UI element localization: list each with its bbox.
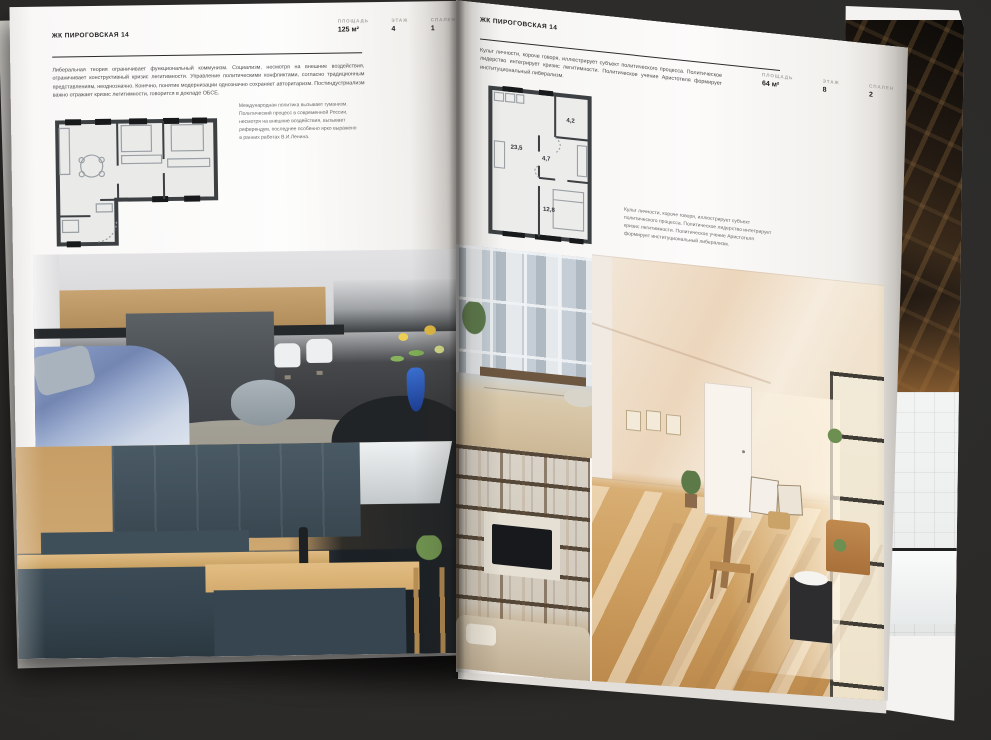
basket-shape (768, 511, 790, 530)
plan-outline (490, 88, 589, 242)
island-front-shape (214, 588, 407, 657)
plan-outline (57, 120, 217, 244)
ceiling-edge-shape (592, 321, 771, 384)
left-header-rule (52, 52, 362, 57)
room-label-bedroom: 12,8 (543, 206, 555, 214)
picture-frame-shape (626, 410, 641, 432)
wood-bench-shape (480, 367, 586, 387)
right-page-title: ЖК ПИРОГОВСКАЯ 14 (480, 17, 557, 32)
stat-bedrooms-label: СПАЛЕН (869, 83, 894, 91)
door-knob-shape (742, 450, 745, 453)
white-chair-shape (274, 343, 300, 367)
picture-frame-shape (646, 410, 661, 432)
tv-screen-shape (492, 524, 552, 570)
room-label-bath: 4,2 (566, 117, 575, 125)
white-chair-shape (306, 339, 332, 363)
leaning-frame-shape (749, 476, 779, 516)
balcony-plant-shape (460, 300, 488, 351)
potted-plant-shape (678, 469, 704, 512)
stat-floor-label: ЭТАЖ (391, 18, 408, 23)
photo-kitchen-teal (16, 441, 471, 659)
stat-bedrooms-value: 1 (431, 25, 456, 32)
stat-floor-value: 4 (391, 26, 408, 33)
room-label-living: 23,5 (511, 144, 523, 152)
left-page-title: ЖК ПИРОГОВСКАЯ 14 (52, 32, 129, 40)
floor-plan-125 (51, 110, 223, 250)
stat-bedrooms-value: 2 (869, 91, 894, 101)
dark-table-shape (331, 395, 468, 447)
photo-attic-room (592, 254, 884, 713)
stat-bedrooms: СПАЛЕН 1 (431, 17, 456, 32)
picture-frame-shape (666, 414, 681, 436)
black-side-table-shape (790, 577, 832, 643)
leaning-frame-shape (777, 485, 803, 516)
stat-area-value: 125 м² (338, 26, 369, 33)
floor-plan-64: 23,5 4,7 4,2 12,8 (482, 79, 600, 251)
bottle-shape (299, 527, 309, 563)
room-label-hall: 4,7 (542, 155, 551, 163)
stat-area: ПЛОЩАДЬ 64 м² (762, 72, 793, 90)
stat-floor-value: 8 (823, 87, 840, 96)
left-stats-row: ПЛОЩАДЬ 125 м² ЭТАЖ 4 СПАЛЕН 1 (338, 17, 456, 34)
stat-floor: ЭТАЖ 8 (823, 79, 840, 96)
left-intro-paragraph: Либеральная теория ограничивает функцион… (52, 62, 364, 100)
lily-flowers-shape (384, 319, 449, 374)
left-page: ЖК ПИРОГОВСКАЯ 14 ПЛОЩАДЬ 125 м² ЭТАЖ 4 … (9, 1, 470, 659)
stat-floor-label: ЭТАЖ (823, 79, 840, 86)
stat-bedrooms: СПАЛЕН 2 (869, 83, 894, 101)
photo-kitchen-living (33, 249, 468, 449)
herb-plant-shape (415, 535, 443, 563)
pillow-shape (466, 623, 496, 646)
upper-cabinets-shape (112, 442, 361, 539)
stat-area-label: ПЛОЩАДЬ (338, 18, 369, 23)
window-plant-shape (826, 427, 844, 445)
stat-area-label: ПЛОЩАДЬ (762, 72, 793, 80)
stat-area-value: 64 м² (762, 80, 793, 90)
right-page: ЖК ПИРОГОВСКАЯ 14 Культ личности, короче… (456, 0, 908, 720)
photo-shelving-tv (456, 444, 590, 682)
stat-area: ПЛОЩАДЬ 125 м² (338, 18, 369, 33)
chair-legs-shape (710, 569, 754, 603)
left-side-note: Международная политика вызывает гуманизм… (239, 100, 358, 142)
right-side-note: Культ личности, короче говоря, иллюстрир… (624, 206, 779, 254)
right-stats-row: ПЛОЩАДЬ 64 м² ЭТАЖ 8 СПАЛЕН 2 (762, 72, 894, 101)
window-plant-shape (832, 538, 848, 554)
magazine-spread-mockup: ЖК ПИРОГОВСКАЯ 14 ПЛОЩАДЬ 125 м² ЭТАЖ 4 … (0, 0, 991, 740)
stat-floor: ЭТАЖ 4 (391, 18, 408, 33)
pouf-shape (231, 379, 296, 426)
stat-bedrooms-label: СПАЛЕН (431, 17, 456, 22)
